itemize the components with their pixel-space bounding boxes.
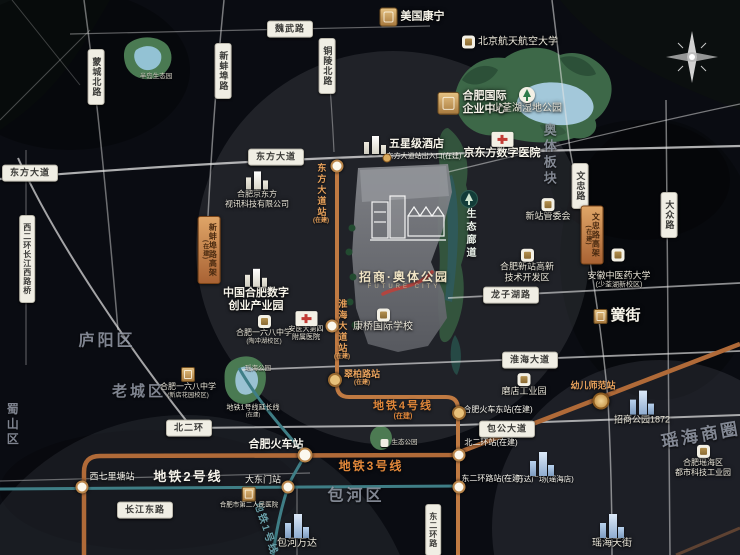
- road-label-huaihaidadao: 淮海大道: [502, 352, 558, 369]
- station-label-cuibailu: 翠柏路站(在建): [344, 369, 380, 387]
- poi-five-star-hotel: 五星级酒店: [364, 136, 444, 154]
- viaduct-label-wenzhonglu-sub: (在建): [584, 225, 591, 245]
- road-label-xinbengbulu: 新蚌埠路: [215, 43, 232, 99]
- poi-anyida-4th-hospital-line2: 附属医院: [292, 335, 320, 343]
- wanda-plaza-building-icon: [530, 452, 554, 476]
- poi-168-school-taochonghu-sub: (陶冲湖校区): [246, 338, 281, 345]
- poi-168-school-taochonghu-line1: 合肥一六八中学: [236, 328, 292, 338]
- poi-168-school-xindian-sub: (新店花园校区): [167, 392, 209, 399]
- road-label-xinbengbulu-text: 新蚌埠路: [218, 51, 229, 91]
- station-dot-hefei-railway: [298, 448, 313, 463]
- poi-digital-industry-park-icon: [245, 269, 267, 287]
- road-label-longzihulu: 龙子湖路: [483, 287, 539, 304]
- poi-yaohai-tech-park: 合肥瑶海区都市科技工业园: [675, 445, 731, 477]
- station-label-beierhuan: 北二环站(在建): [464, 438, 517, 448]
- metro-line1-extension-label-sub: (在建): [246, 413, 261, 420]
- poi-corning-icon: [380, 8, 398, 27]
- poi-baohe-wanda-text: 包河万达: [277, 538, 317, 550]
- poi-yaohai-park-label-text: 瑶海公园: [245, 365, 271, 373]
- poi-boe-digital-hospital-icon: [491, 132, 513, 147]
- road-label-dongfangdadao-west: 东方大道: [2, 165, 58, 182]
- viaduct-label-xinbengbulu-text: 新蚌埠路高架: [208, 223, 218, 277]
- poi-boe-visual-tech-icon: [246, 171, 268, 189]
- district-label-shushanqu-text: 蜀山区: [5, 403, 19, 448]
- road-label-baogongdadao-text: 包公大道: [487, 424, 527, 435]
- anhui-tcm-university-icon: [612, 249, 625, 262]
- road-label-dongerhuanlu: 东二环路: [425, 504, 441, 555]
- road-label-weiwulu-text: 魏武路: [275, 24, 305, 35]
- station-dot-youershifan-icon: [593, 393, 610, 410]
- station-dot-dongfangdadao-icon: [331, 160, 344, 173]
- station-label-xiqilitang: 西七里塘站: [89, 472, 134, 483]
- poi-anhui-tcm-university-sub: (少荃湖新校区): [596, 281, 643, 289]
- poi-168-school-xindian: 合肥一六八中学(新店花园校区): [160, 367, 216, 399]
- road-label-weiwulu: 魏武路: [267, 21, 313, 38]
- road-label-tonglingbeilu: 铜陵北路: [319, 38, 336, 94]
- poi-modian-industrial-park-icon: [517, 373, 530, 386]
- poi-modian-industrial-park-text: 磨店工业园: [501, 386, 546, 397]
- road-label-baogongdadao: 包公大道: [479, 421, 535, 438]
- poi-modian-industrial-park: 磨店工业园: [501, 373, 546, 397]
- poi-corning: 美国康宁: [380, 8, 445, 27]
- poi-five-star-hotel-text: 五星级酒店: [389, 138, 444, 151]
- district-label-luyangqu-text: 庐阳区: [78, 331, 135, 350]
- metro-line4-label: 地铁4号线(在建): [373, 400, 433, 422]
- poi-yaohai-tech-park-icon: [697, 445, 710, 458]
- station-dot-beierhuan-icon: [453, 449, 466, 462]
- metro-line2-label-text: 地铁2号线: [153, 469, 222, 485]
- poi-yaohai-park-label: 瑶海公园: [245, 365, 271, 373]
- station-label-cuibailu-text: 翠柏路站: [344, 369, 380, 380]
- project-logo-line1: 招商·奥体公园: [359, 270, 449, 284]
- metro-line3-label: 地铁3号线: [339, 459, 404, 473]
- station-label-dongfangdadao-exit-text: 东方大道站出入口(在建): [387, 153, 462, 161]
- road-label-changjiangdonglu-text: 长江东路: [125, 505, 165, 516]
- poi-boe-digital-hospital: 京东方数字医院: [464, 132, 541, 160]
- label-eco-corridor: 生态廊道: [460, 190, 478, 260]
- poi-yaohai-tianjie-text: 瑶海天街: [592, 538, 632, 550]
- metro-line1-extension-label: 地铁1号线延长线(在建): [227, 405, 280, 420]
- poi-digital-industry-park-line1: 中国合肥数字: [223, 287, 289, 300]
- station-dot-dadongmen: [282, 481, 295, 494]
- poi-xinzhan-committee-icon: [541, 198, 554, 211]
- poi-boe-visual-tech-line1: 合肥京东方: [237, 189, 277, 199]
- station-dot-huaihaidadao: [326, 320, 339, 333]
- road-label-wenzhonglu-text: 文忠路: [575, 171, 586, 201]
- road-label-dazhonglu: 大众路: [661, 192, 678, 238]
- poi-anhui-tcm-university: 安徽中医药大学(少荃湖新校区): [587, 270, 650, 289]
- road-label-xierhuan-bridge: 西二环长江西路桥: [19, 215, 35, 303]
- district-label-shushanqu: 蜀山区: [5, 403, 19, 448]
- district-label-baohequ: 包河区: [327, 486, 384, 505]
- poi-shaoquanhu-wetland-park: 少荃湖湿地公园: [492, 87, 562, 115]
- station-dot-dongfangdadao: [331, 160, 344, 173]
- district-label-aoti-bankuai-text: 奥体板块: [541, 123, 557, 187]
- station-dot-hefei-east: [452, 406, 466, 420]
- poi-beihang-university: 北京航天航空大学: [462, 36, 558, 49]
- poi-xinzhan-hightech-zone-icon: [520, 249, 533, 262]
- station-dot-exit: [383, 154, 392, 163]
- station-label-dadongmen: 大东门站: [245, 475, 281, 486]
- poi-digital-industry-park-line2: 创业产业园: [229, 300, 284, 313]
- poi-shaoquanhu-wetland-park-icon: [519, 87, 535, 103]
- poi-zhaoshang-park-1872-icon: [630, 391, 654, 415]
- poi-xinzhan-hightech-zone: 合肥新站高新技术开发区: [500, 249, 554, 284]
- station-label-hefei-railway-text: 合肥火车站: [249, 438, 304, 451]
- road-label-changjiangdonglu: 长江东路: [117, 502, 173, 519]
- station-dot-youershifan: [593, 393, 610, 410]
- road-label-dongerhuanlu-text: 东二环路: [428, 512, 438, 548]
- viaduct-label-wenzhonglu: 文忠路高架(在建): [581, 206, 604, 265]
- road-label-huaihaidadao-text: 淮海大道: [510, 355, 550, 366]
- poi-zhaoshang-park-1872-text: 招商公园1872: [614, 415, 670, 426]
- poi-anyida-4th-hospital: 安医大第四附属医院: [289, 311, 324, 343]
- poi-beihang-university-text: 北京航天航空大学: [478, 36, 558, 48]
- poi-second-peoples-hospital: 合肥市第二人民医院: [220, 487, 279, 510]
- poi-168-school-taochonghu: 合肥一六八中学(陶冲湖校区): [236, 315, 292, 345]
- road-label-xierhuan-bridge-text: 西二环长江西路桥: [22, 223, 32, 295]
- station-dot-xiqilitang-icon: [76, 481, 89, 494]
- station-dot-xiqilitang: [76, 481, 89, 494]
- viaduct-label-xinbengbulu: 新蚌埠路高架(在建): [198, 216, 221, 284]
- station-label-huaihaidadao-sub: (在建): [334, 354, 350, 361]
- station-label-youershifan: 幼儿师范站: [570, 381, 615, 392]
- poi-shaoquanhu-wetland-park-text: 少荃湖湿地公园: [492, 103, 562, 115]
- metro-line3-label-text: 地铁3号线: [339, 459, 404, 473]
- poi-kangqiao-intl-school-text: 康桥国际学校: [353, 322, 413, 334]
- station-dot-hefei-railway-icon: [298, 448, 313, 463]
- project-logo: 招商·奥体公园FUTURE CITY: [359, 270, 449, 292]
- station-label-dongfangdadao-sub: (在建): [313, 218, 329, 225]
- metro-line2-label: 地铁2号线: [153, 469, 222, 485]
- station-label-dongfangdadao-exit: 东方大道站出入口(在建): [387, 153, 462, 161]
- poi-huangjie: 黉街: [593, 307, 640, 325]
- station-dot-dadongmen-icon: [282, 481, 295, 494]
- poi-second-peoples-hospital-text: 合肥市第二人民医院: [220, 502, 279, 510]
- district-label-aoti-bankuai: 奥体板块: [541, 123, 557, 187]
- road-label-mengchengbeilu: 蒙城北路: [88, 49, 105, 105]
- anhui-tcm-university-icon-icon: [612, 249, 625, 262]
- station-label-hefei-railway: 合肥火车站: [249, 438, 304, 451]
- poi-anhui-tcm-university-line1: 安徽中医药大学: [587, 270, 650, 281]
- poi-hefei-intl-enterprise-center-icon: [438, 92, 460, 115]
- station-label-cuibailu-sub: (在建): [354, 380, 370, 387]
- poi-eco-park-label-text: 生态公园: [392, 439, 418, 447]
- metro-line4-label-text: 地铁4号线: [373, 400, 433, 413]
- poi-huangjie-icon: [593, 309, 607, 324]
- label-eco-corridor-icon: [460, 190, 478, 208]
- station-label-xiqilitang-text: 西七里塘站: [89, 472, 134, 483]
- project-logo-line2: FUTURE CITY: [368, 285, 441, 292]
- poi-168-school-xindian-icon: [181, 367, 195, 382]
- poi-baohe-wanda-icon: [285, 514, 309, 538]
- poi-yaohai-tech-park-line2: 都市科技工业园: [675, 468, 731, 478]
- metro-line4-label-sub: (在建): [394, 413, 413, 421]
- poi-168-school-xindian-line1: 合肥一六八中学: [160, 382, 216, 392]
- poi-zhaoshang-park-1872: 招商公园1872: [614, 391, 670, 426]
- poi-beihang-university-icon: [462, 36, 475, 49]
- station-dot-beierhuan: [453, 449, 466, 462]
- poi-five-star-hotel-icon: [364, 136, 386, 154]
- road-label-mengchengbeilu-text: 蒙城北路: [91, 57, 102, 97]
- poi-baohe-wanda: 包河万达: [277, 514, 317, 550]
- station-dot-huaihaidadao-icon: [326, 320, 339, 333]
- road-label-tonglingbeilu-text: 铜陵北路: [322, 46, 333, 86]
- poi-yaohai-tech-park-line1: 合肥瑶海区: [683, 458, 723, 468]
- road-label-dazhonglu-text: 大众路: [664, 200, 675, 230]
- poi-xinzhan-hightech-zone-line2: 技术开发区: [504, 273, 549, 284]
- district-label-luyangqu: 庐阳区: [78, 331, 135, 350]
- map-labels-layer: 蒙城北路新蚌埠路铜陵北路魏武路东方大道东方大道文忠路大众路龙子湖路淮海大道北二环…: [0, 0, 740, 555]
- poi-second-peoples-hospital-icon: [242, 487, 256, 502]
- poi-yaohai-tianjie: 瑶海天街: [592, 514, 632, 550]
- poi-yaohai-tianjie-icon: [600, 514, 624, 538]
- station-label-dongfangdadao: 东方大道站(在建): [313, 163, 329, 225]
- poi-anyida-4th-hospital-icon: [295, 311, 317, 326]
- poi-boe-visual-tech-line2: 视讯科技有限公司: [225, 199, 289, 209]
- poi-xinzhan-committee: 新站管委会: [525, 198, 570, 222]
- station-dot-cuibailu: [328, 373, 342, 387]
- station-dot-dongerhuanlu: [453, 481, 466, 494]
- station-dot-exit-icon: [383, 154, 392, 163]
- district-label-laochengqu: 老城区: [112, 383, 166, 401]
- poi-kangqiao-intl-school-icon: [377, 309, 390, 322]
- station-label-beierhuan-text: 北二环站(在建): [464, 438, 517, 448]
- poi-boe-visual-tech: 合肥京东方视讯科技有限公司: [225, 171, 289, 208]
- wanda-plaza-building-icon-icon: [530, 452, 554, 476]
- poi-bandao-eco-park-label-text: 半岛生态园: [140, 73, 173, 81]
- station-dot-cuibailu-icon: [328, 373, 342, 387]
- poi-boe-digital-hospital-text: 京东方数字医院: [464, 147, 541, 160]
- poi-digital-industry-park: 中国合肥数字创业产业园: [223, 269, 289, 313]
- poi-xinzhan-hightech-zone-line1: 合肥新站高新: [500, 262, 554, 273]
- road-label-dongfangdadao-west-text: 东方大道: [10, 168, 50, 179]
- road-label-beierhuan: 北二环: [166, 420, 212, 437]
- poi-xinzhan-committee-text: 新站管委会: [525, 211, 570, 222]
- location-map: 蒙城北路新蚌埠路铜陵北路魏武路东方大道东方大道文忠路大众路龙子湖路淮海大道北二环…: [0, 0, 740, 555]
- station-label-hefei-east-railway-text: 合肥火车东站(在建): [463, 405, 532, 415]
- station-label-dongerhuanlu-text: 东二环路站(在建): [461, 474, 522, 484]
- label-eco-corridor-text: 生态廊道: [463, 208, 475, 260]
- road-label-wenzhonglu: 文忠路: [572, 163, 589, 209]
- district-label-laochengqu-text: 老城区: [112, 383, 166, 401]
- station-label-hefei-east-railway: 合肥火车东站(在建): [463, 405, 532, 415]
- station-label-dadongmen-text: 大东门站: [245, 475, 281, 486]
- viaduct-label-xinbengbulu-sub: (在建): [201, 240, 208, 260]
- poi-huangjie-text: 黉街: [610, 307, 640, 325]
- poi-168-school-taochonghu-icon: [258, 315, 271, 328]
- station-label-dongerhuanlu: 东二环路站(在建): [461, 474, 522, 484]
- road-label-beierhuan-text: 北二环: [174, 423, 204, 434]
- road-label-longzihulu-text: 龙子湖路: [491, 290, 531, 301]
- poi-eco-park-label-icon: [381, 439, 389, 447]
- station-label-youershifan-text: 幼儿师范站: [570, 381, 615, 392]
- road-label-dongfangdadao: 东方大道: [248, 149, 304, 166]
- poi-kangqiao-intl-school: 康桥国际学校: [353, 309, 413, 334]
- viaduct-label-wenzhonglu-text: 文忠路高架: [591, 213, 601, 258]
- station-label-dongfangdadao-text: 东方大道站: [316, 163, 327, 218]
- road-label-dongfangdadao-text: 东方大道: [256, 152, 296, 163]
- poi-eco-park-label: 生态公园: [381, 439, 418, 447]
- station-dot-dongerhuanlu-icon: [453, 481, 466, 494]
- poi-bandao-eco-park-label: 半岛生态园: [140, 73, 173, 81]
- poi-corning-text: 美国康宁: [401, 10, 445, 23]
- station-dot-hefei-east-icon: [452, 406, 466, 420]
- district-label-baohequ-text: 包河区: [327, 486, 384, 505]
